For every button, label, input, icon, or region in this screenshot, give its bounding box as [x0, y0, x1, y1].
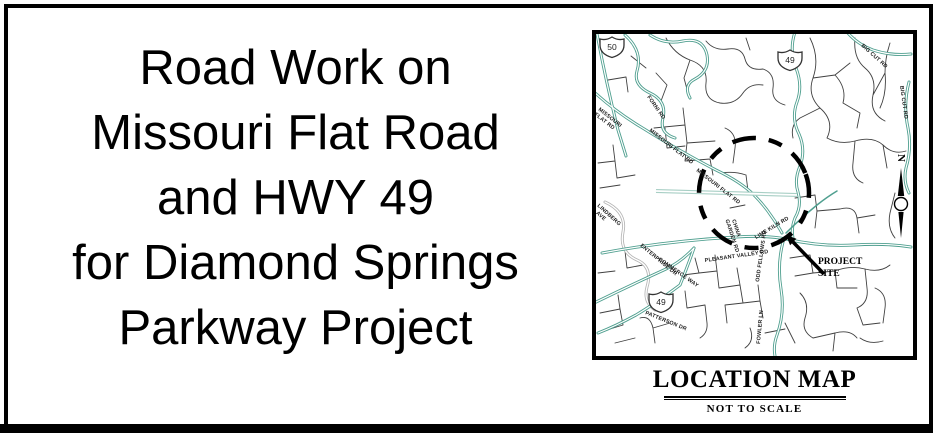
- bottom-rule: [0, 424, 933, 433]
- road-core: [650, 35, 708, 98]
- road-label-text: BIG CUT RD: [860, 43, 889, 70]
- north-arrow-needle-down: [898, 212, 903, 238]
- map-caption: LOCATION MAP NOT TO SCALE: [592, 366, 917, 415]
- road-label-text: MISSOURI FLAT RD: [648, 128, 694, 166]
- north-arrow-needle-up: [898, 168, 904, 196]
- map-title: LOCATION MAP: [592, 366, 917, 394]
- map-subtitle: NOT TO SCALE: [592, 403, 917, 415]
- headline-line: for Diamond Springs: [8, 231, 583, 296]
- headline: Road Work on Missouri Flat Road and HWY …: [8, 36, 583, 361]
- road-label-lindberg-ave: LINDBERG AVE: [596, 203, 622, 232]
- headline-line: Parkway Project: [8, 296, 583, 361]
- roadwork-announcement: Road Work on Missouri Flat Road and HWY …: [0, 0, 943, 437]
- road-label-missouri-flat-1: MISSOURI FLAT RD: [648, 128, 694, 166]
- location-map: MISSOURI FLAT RD FORNI RD MISSOURI FLAT …: [596, 34, 913, 356]
- road-label-text: FOWLER LN: [756, 310, 765, 344]
- road-label-missouri-flat-2: MISSOURI FLAT RD: [695, 168, 741, 206]
- north-arrow-circle: [895, 198, 908, 211]
- road-label-big-cut-top: BIG CUT RD: [860, 43, 889, 70]
- road-core: [847, 34, 911, 55]
- shield-number: 49: [785, 55, 795, 65]
- shield-number: 49: [656, 297, 666, 307]
- us-route-shield-49-north: 49: [778, 50, 802, 71]
- road-label-fowler-ln: FOWLER LN: [756, 310, 765, 344]
- location-map-panel: MISSOURI FLAT RD FORNI RD MISSOURI FLAT …: [592, 30, 917, 360]
- headline-line: Missouri Flat Road: [8, 101, 583, 166]
- headline-line: Road Work on: [8, 36, 583, 101]
- road-label-text: MISSOURI FLAT RD: [695, 168, 741, 206]
- shield-number: 50: [607, 42, 617, 52]
- north-label: N: [895, 154, 907, 162]
- minor-roads-path: [683, 255, 785, 348]
- title-underline-thick: [664, 396, 846, 398]
- minor-roads-path: [792, 38, 906, 183]
- project-site-label: PROJECT: [818, 257, 863, 267]
- title-underline-thin: [664, 399, 846, 400]
- us-route-shield-50: 50: [600, 37, 624, 58]
- headline-line: and HWY 49: [8, 166, 583, 231]
- project-site-label: SITE: [818, 269, 840, 279]
- teal-road-squiggle: [650, 35, 708, 98]
